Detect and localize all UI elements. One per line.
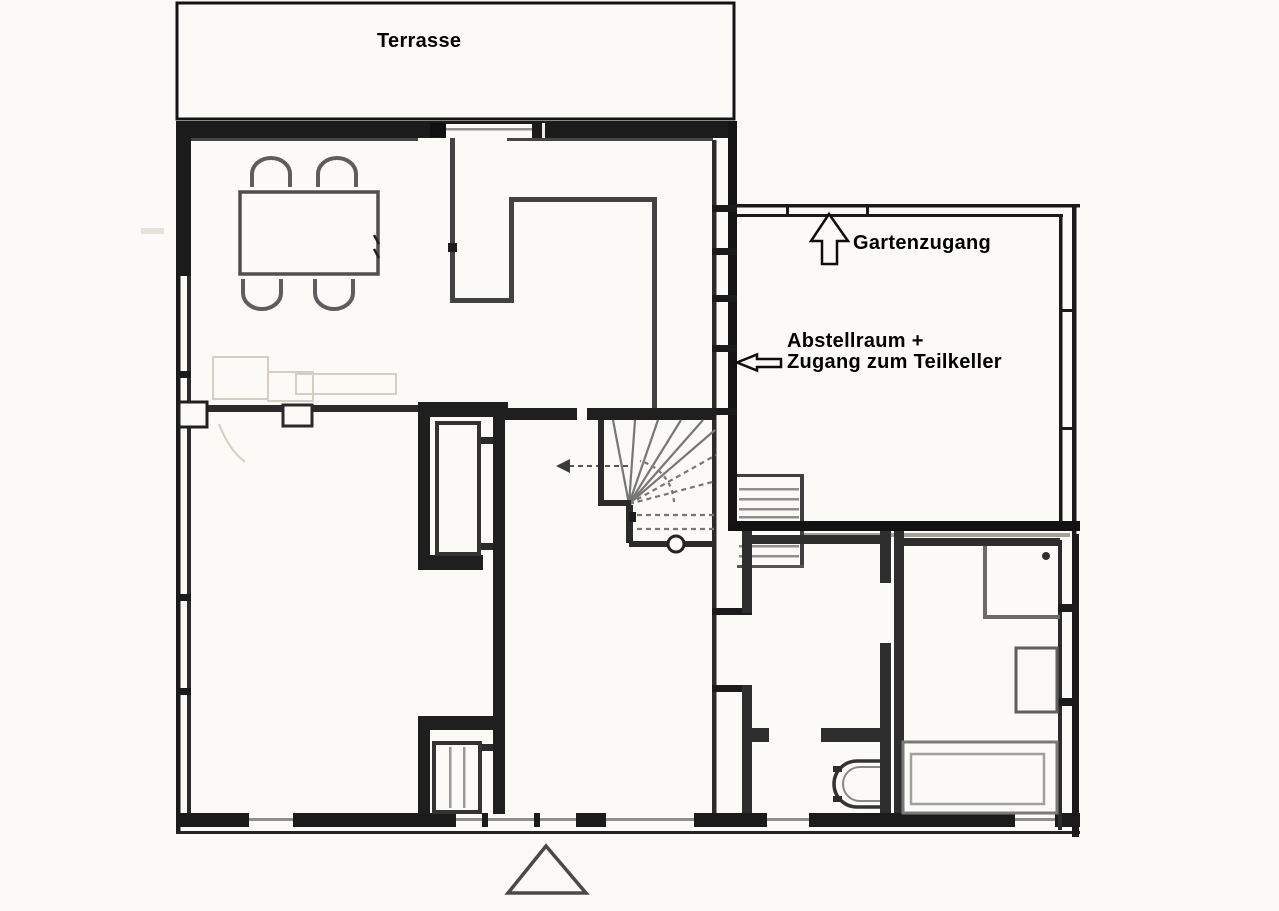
stair-newel-circle: [668, 536, 684, 552]
closet-lower: [434, 743, 480, 812]
scanned-floor-plan-page: Terrasse Gartenzugang Abstellraum + Zuga…: [0, 0, 1279, 911]
scan-smudge: [141, 228, 164, 234]
toilet-fixture: [833, 761, 880, 807]
drain-dot: [1042, 552, 1050, 560]
dining-table: [240, 192, 378, 274]
cellar-stairs: [728, 474, 804, 568]
wall-notch: [179, 402, 207, 427]
storage-room-label-line1: Abstellraum +: [787, 331, 924, 351]
floor-plan-drawing: [0, 0, 1279, 911]
washbasin: [1016, 648, 1057, 712]
garden-access-label: Gartenzugang: [853, 233, 991, 253]
closet-upper: [437, 423, 479, 554]
wall-block-square: [283, 405, 312, 426]
terrace-label: Terrasse: [377, 31, 461, 51]
storage-room-label-line2: Zugang zum Teilkeller: [787, 352, 1002, 372]
terrace-door-opening: [430, 123, 545, 138]
